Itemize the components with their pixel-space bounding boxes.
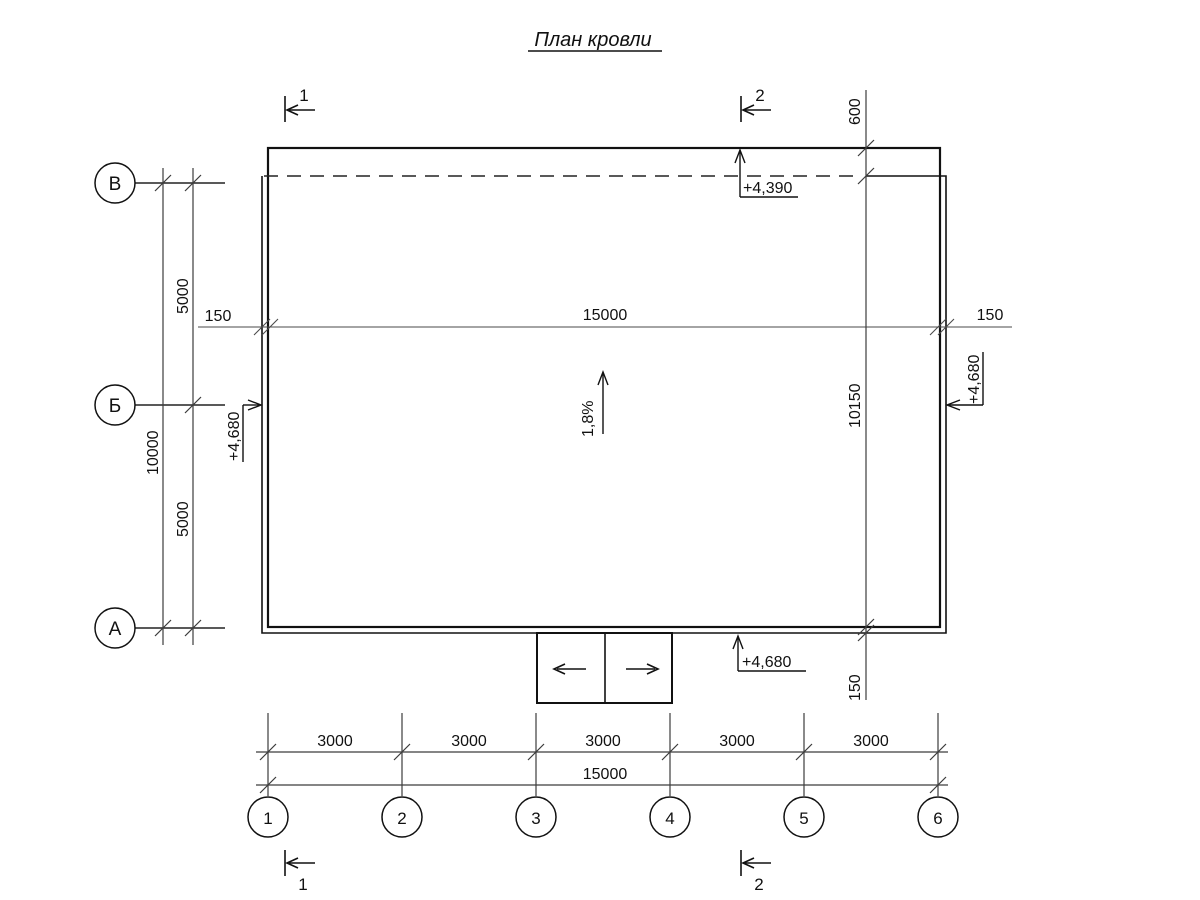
dim-left-span-bottom: 5000: [175, 501, 192, 537]
dim-left-span-top: 5000: [175, 278, 192, 314]
dim-span-4: 3000: [719, 733, 755, 750]
section-mark-1-bottom: [285, 850, 315, 876]
dim-right-total: 10150: [847, 383, 864, 428]
roof-plan-drawing: План кровли В Б А 10000 5000 500: [0, 0, 1200, 900]
section-label-2-bottom: 2: [754, 875, 763, 894]
axis-label-6: 6: [933, 809, 942, 828]
axis-label-1: 1: [263, 809, 272, 828]
elevation-right-label: +4,680: [966, 355, 983, 404]
axis-label-3: 3: [531, 809, 540, 828]
section-mark-2-bottom: [741, 850, 771, 876]
dim-right-top: 600: [847, 98, 864, 125]
elevation-left-leader: [243, 400, 261, 462]
roof-drip-edge: [262, 176, 946, 633]
canopy-drain-arrow-right: [626, 664, 658, 674]
elevation-top-label: +4,390: [743, 180, 792, 197]
dim-right-bottom: 150: [847, 674, 864, 701]
dim-width-total: 15000: [583, 307, 628, 324]
dim-overhang-right: 150: [977, 307, 1004, 324]
axis-label-5: 5: [799, 809, 808, 828]
slope-label: 1,8%: [580, 401, 597, 437]
dim-bottom-total: 15000: [583, 766, 628, 783]
section-label-1-bottom: 1: [298, 875, 307, 894]
dim-span-2: 3000: [451, 733, 487, 750]
section-label-2-top: 2: [755, 86, 764, 105]
slope-arrow: [598, 372, 608, 434]
dim-span-1: 3000: [317, 733, 353, 750]
axis-circles-bottom: [248, 797, 958, 837]
drawing-title: План кровли: [534, 29, 651, 51]
elevation-left-label: +4,680: [226, 412, 243, 461]
axis-lines-left: [135, 183, 225, 628]
axis-label-a: А: [109, 619, 122, 640]
canopy-drain-arrow-left: [554, 664, 586, 674]
dim-span-5: 3000: [853, 733, 889, 750]
bottom-extension-lines: [268, 713, 938, 796]
section-label-1-top: 1: [299, 86, 308, 105]
axis-label-4: 4: [665, 809, 674, 828]
axis-label-b: Б: [109, 396, 121, 417]
axis-label-v: В: [109, 174, 122, 195]
left-dim-lines: [155, 168, 201, 645]
dim-overhang-left: 150: [205, 308, 232, 325]
roof-main-outline: [268, 148, 940, 627]
dim-left-total: 10000: [145, 430, 162, 475]
elevation-bottom-label: +4,680: [742, 654, 791, 671]
dim-span-3: 3000: [585, 733, 621, 750]
axis-label-2: 2: [397, 809, 406, 828]
